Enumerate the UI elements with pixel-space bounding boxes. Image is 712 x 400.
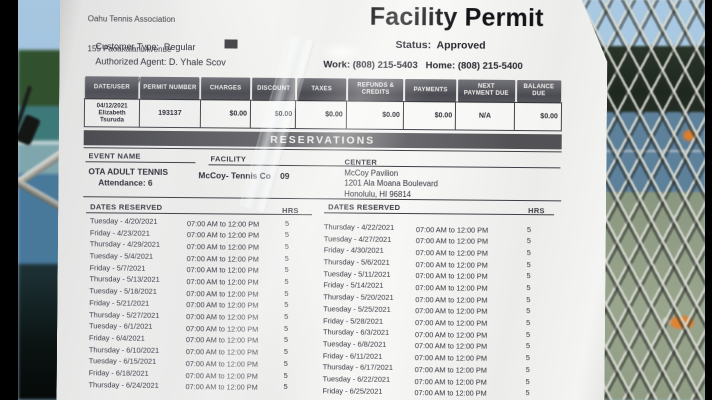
reservation-hours: 5 [285, 242, 289, 251]
reservation-hours: 5 [526, 353, 530, 362]
divider [85, 161, 195, 163]
glare-spot [318, 42, 364, 62]
fee-table-header: DATE/USERPERMIT NUMBERCHARGESDISCOUNTTAX… [84, 76, 562, 102]
reservation-time: 07:00 AM to 12:00 PM [187, 242, 259, 252]
reservation-time: 07:00 AM to 12:00 PM [415, 283, 487, 293]
reservation-date: Tuesday - 5/11/2021 [323, 269, 390, 279]
reservation-hours: 5 [285, 230, 289, 239]
reservation-time: 07:00 AM to 12:00 PM [187, 230, 259, 240]
fee-cell-value: $0.00 [515, 103, 561, 130]
reservation-date: Thursday - 6/24/2021 [89, 380, 159, 390]
dates-reserved-list-right: Thursday - 4/22/202107:00 AM to 12:00 PM… [322, 222, 564, 399]
fence-photo: Oahu Tennis Association 155 Paoakalani A… [18, 0, 705, 400]
reservation-time: 07:00 AM to 12:00 PM [415, 295, 487, 305]
reservation-time: 07:00 AM to 12:00 PM [415, 271, 487, 281]
event-name-value: OTA ADULT TENNIS [88, 166, 168, 177]
reservation-hours: 5 [527, 236, 531, 245]
reservation-hours: 5 [284, 289, 288, 298]
reservation-date: Friday - 5/21/2021 [89, 298, 149, 308]
center-name: McCoy Pavilion [344, 168, 438, 179]
authorized-agent: Authorized Agent: D. Yhale Scov [95, 56, 226, 67]
reservation-hours: 5 [526, 318, 530, 327]
reservation-hours: 5 [284, 347, 288, 356]
reservation-time: 07:00 AM to 12:00 PM [186, 301, 258, 311]
fee-column-header: TAXES [297, 78, 346, 100]
fee-column-header: DATE/USER [85, 76, 139, 98]
reservation-date: Thursday - 5/27/2021 [89, 310, 159, 320]
reservation-hours: 5 [285, 265, 289, 274]
reservation-time: 07:00 AM to 12:00 PM [415, 353, 487, 363]
reservation-time: 07:00 AM to 12:00 PM [187, 265, 259, 275]
customer-type: Customer Type: Regular [95, 41, 195, 52]
reservation-hours: 5 [285, 219, 289, 228]
divider [324, 212, 554, 215]
reservation-row: Friday - 6/25/202107:00 AM to 12:00 PM5 [322, 386, 562, 400]
reservation-date: Tuesday - 6/1/2021 [89, 321, 152, 331]
reservation-time: 07:00 AM to 12:00 PM [416, 248, 488, 258]
reservation-date: Tuesday - 4/27/2021 [324, 234, 392, 244]
reservation-date: Tuesday - 6/22/2021 [323, 374, 391, 384]
reservation-time: 07:00 AM to 12:00 PM [186, 347, 258, 357]
reservation-time: 07:00 AM to 12:00 PM [186, 371, 258, 381]
status-text: Status: Approved [395, 39, 485, 52]
reservation-hours: 5 [284, 324, 288, 333]
reservation-hours: 5 [284, 382, 288, 391]
divider [83, 196, 561, 201]
fee-cell-value: $0.00 [347, 102, 404, 129]
photo-frame: Oahu Tennis Association 155 Paoakalani A… [0, 0, 712, 400]
fee-column-header: REFUNDS & CREDITS [348, 79, 404, 101]
reservation-date: Thursday - 5/13/2021 [89, 275, 159, 285]
dates-reserved-label-right: DATES RESERVED [328, 202, 400, 212]
event-name-label: EVENT NAME [89, 151, 141, 160]
fee-table-row: 04/12/2021 Elizabeth Tsuruda193137$0.00$… [84, 98, 562, 131]
reservation-row: Thursday - 6/24/202107:00 AM to 12:00 PM… [88, 380, 328, 394]
reservation-date: Tuesday - 4/20/2021 [90, 216, 158, 226]
reservation-date: Thursday - 6/3/2021 [323, 327, 389, 337]
reservation-date: Thursday - 6/10/2021 [89, 345, 159, 355]
fee-column-header: CHARGES [201, 77, 250, 99]
reservation-hours: 5 [526, 271, 530, 280]
reservation-date: Thursday - 6/17/2021 [323, 363, 393, 373]
reservation-hours: 5 [526, 295, 530, 304]
fee-column-header: BALANCE DUE [517, 80, 562, 102]
reservation-hours: 5 [284, 335, 288, 344]
fee-cell-value: 193137 [140, 100, 201, 128]
reservation-time: 07:00 AM to 12:00 PM [415, 377, 487, 387]
fee-cell-value: N/A [456, 102, 515, 130]
reservation-hours: 5 [526, 365, 530, 374]
reservation-time: 07:00 AM to 12:00 PM [187, 219, 259, 229]
dates-reserved-list-left: Tuesday - 4/20/202107:00 AM to 12:00 PM5… [88, 216, 330, 393]
fee-column-header: PERMIT NUMBER [140, 77, 199, 100]
reservation-time: 07:00 AM to 12:00 PM [186, 289, 258, 299]
reservation-hours: 5 [526, 330, 530, 339]
reservation-date: Friday - 5/7/2021 [90, 263, 146, 272]
reservation-hours: 5 [284, 277, 288, 286]
reservation-time: 07:00 AM to 12:00 PM [415, 330, 487, 340]
reservation-date: Tuesday - 5/18/2021 [89, 286, 157, 296]
reservation-time: 07:00 AM to 12:00 PM [186, 359, 258, 369]
center-address: McCoy Pavilion 1201 Ala Moana Boulevard … [344, 168, 438, 200]
facility-label: FACILITY [210, 154, 246, 163]
reservation-time: 07:00 AM to 12:00 PM [186, 324, 258, 334]
organization-name: Oahu Tennis Association [88, 14, 176, 25]
reservation-date: Friday - 5/14/2021 [323, 281, 383, 291]
reservation-hours: 5 [526, 306, 530, 315]
reservation-time: 07:00 AM to 12:00 PM [415, 318, 487, 328]
reservation-hours: 5 [284, 300, 288, 309]
reservation-time: 07:00 AM to 12:00 PM [415, 307, 487, 317]
reservation-date: Tuesday - 5/4/2021 [90, 251, 153, 261]
reservation-time: 07:00 AM to 12:00 PM [415, 342, 487, 352]
attendance-value: Attendance: 6 [98, 178, 152, 187]
fee-column-header: NEXT PAYMENT DUE [458, 79, 515, 101]
permit-title: Facility Permit [370, 3, 544, 34]
fee-column-header: PAYMENTS [405, 79, 456, 101]
reservation-date: Thursday - 5/6/2021 [324, 257, 390, 267]
reservation-date: Friday - 6/11/2021 [323, 351, 383, 361]
fee-cell-value: $0.00 [296, 101, 347, 128]
reservation-hours: 5 [526, 283, 530, 292]
reservation-date: Friday - 5/28/2021 [323, 316, 383, 326]
dates-reserved-label-left: DATES RESERVED [90, 202, 162, 212]
reservation-date: Thursday - 4/22/2021 [324, 222, 394, 232]
reservation-date: Friday - 6/4/2021 [89, 333, 145, 342]
reservation-date: Friday - 4/30/2021 [324, 246, 384, 256]
reservation-hours: 5 [526, 342, 530, 351]
reservation-time: 07:00 AM to 12:00 PM [415, 365, 487, 375]
reservations-banner: RESERVATIONS [84, 130, 562, 149]
reservation-hours: 5 [285, 254, 289, 263]
reservation-time: 07:00 AM to 12:00 PM [414, 388, 486, 398]
reservation-hours: 5 [527, 248, 531, 257]
reservation-date: Tuesday - 6/15/2021 [89, 357, 157, 367]
reservation-time: 07:00 AM to 12:00 PM [186, 277, 258, 287]
ink-mark [224, 39, 237, 48]
reservation-date: Tuesday - 6/8/2021 [323, 339, 386, 349]
center-address-line1: 1201 Ala Moana Boulevard [344, 179, 438, 190]
reservation-hours: 5 [525, 388, 529, 397]
fee-cell-value: $0.00 [404, 102, 457, 129]
reservation-date: Friday - 4/23/2021 [90, 228, 150, 238]
reservation-hours: 5 [284, 359, 288, 368]
reservation-hours: 5 [527, 225, 531, 234]
reservation-date: Friday - 6/25/2021 [322, 386, 382, 396]
fee-cell-value: 04/12/2021 Elizabeth Tsuruda [85, 99, 140, 126]
fee-cell-value: $0.00 [200, 100, 251, 127]
reservation-hours: 5 [284, 312, 288, 321]
reservation-time: 07:00 AM to 12:00 PM [186, 382, 258, 392]
reservation-time: 07:00 AM to 12:00 PM [416, 260, 488, 270]
reservation-time: 07:00 AM to 12:00 PM [416, 225, 488, 235]
reservation-hours: 5 [527, 260, 531, 269]
reservation-date: Tuesday - 5/25/2021 [323, 304, 391, 314]
reservation-date: Thursday - 5/20/2021 [323, 292, 393, 302]
reservation-time: 07:00 AM to 12:00 PM [186, 336, 258, 346]
reservation-hours: 5 [284, 370, 288, 379]
reservation-time: 07:00 AM to 12:00 PM [416, 236, 488, 246]
reservation-hours: 5 [526, 377, 530, 386]
reservation-time: 07:00 AM to 12:00 PM [187, 254, 259, 264]
reservation-time: 07:00 AM to 12:00 PM [186, 312, 258, 322]
reservation-date: Friday - 6/18/2021 [89, 368, 149, 378]
divider [86, 212, 312, 215]
reservation-date: Thursday - 4/29/2021 [90, 240, 160, 250]
fee-table: DATE/USERPERMIT NUMBERCHARGESDISCOUNTTAX… [84, 76, 562, 131]
